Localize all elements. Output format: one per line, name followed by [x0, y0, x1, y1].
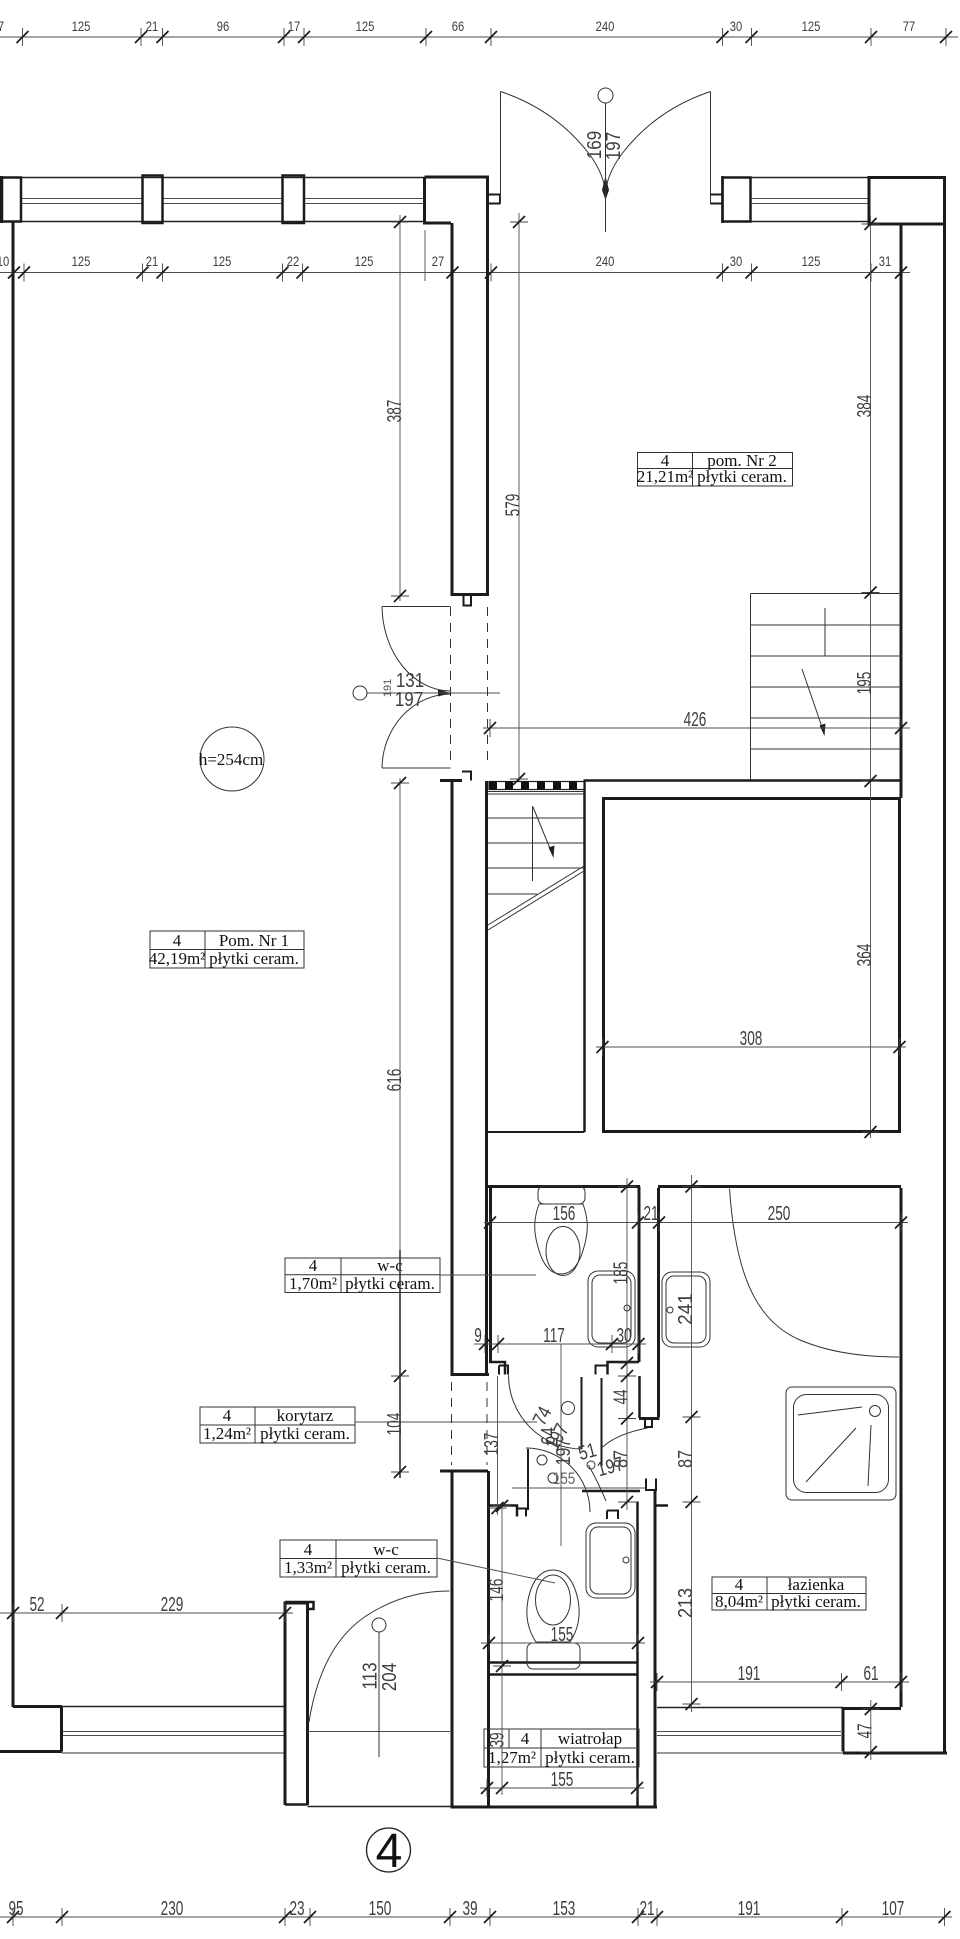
svg-text:155: 155 — [553, 1470, 576, 1489]
svg-text:4: 4 — [223, 1406, 232, 1425]
svg-text:77: 77 — [903, 19, 915, 34]
svg-text:229: 229 — [161, 1593, 184, 1615]
svg-text:579: 579 — [502, 494, 524, 517]
svg-text:21: 21 — [643, 1202, 658, 1224]
svg-text:61: 61 — [863, 1662, 878, 1684]
svg-text:125: 125 — [802, 19, 821, 34]
svg-text:w-c: w-c — [373, 1540, 399, 1559]
svg-text:95: 95 — [8, 1897, 23, 1919]
svg-text:364: 364 — [853, 944, 875, 967]
svg-text:52: 52 — [29, 1593, 44, 1615]
svg-text:Pom. Nr 1: Pom. Nr 1 — [219, 931, 289, 950]
svg-text:185: 185 — [610, 1262, 632, 1285]
svg-text:płytki ceram.: płytki ceram. — [771, 1592, 861, 1611]
svg-text:korytarz: korytarz — [277, 1406, 334, 1425]
svg-text:96: 96 — [217, 19, 229, 34]
svg-text:23: 23 — [289, 1897, 304, 1919]
svg-text:30: 30 — [730, 19, 742, 34]
svg-text:387: 387 — [383, 400, 405, 423]
svg-text:241: 241 — [675, 1293, 698, 1325]
svg-text:153: 153 — [553, 1897, 576, 1919]
svg-text:9: 9 — [474, 1324, 482, 1346]
svg-text:426: 426 — [684, 708, 707, 730]
svg-text:87: 87 — [610, 1450, 632, 1468]
svg-text:125: 125 — [802, 254, 821, 269]
svg-text:21: 21 — [639, 1897, 654, 1919]
svg-text:płytki ceram.: płytki ceram. — [341, 1558, 431, 1577]
svg-text:117: 117 — [543, 1324, 565, 1346]
svg-text:87: 87 — [674, 1450, 696, 1468]
svg-text:1,33m²: 1,33m² — [284, 1558, 332, 1577]
svg-text:10: 10 — [0, 254, 9, 269]
svg-text:204: 204 — [378, 1663, 401, 1691]
svg-text:21,21m²: 21,21m² — [637, 467, 694, 486]
svg-text:308: 308 — [740, 1027, 763, 1049]
svg-text:197: 197 — [552, 1439, 574, 1466]
svg-text:213: 213 — [675, 1588, 697, 1618]
svg-text:146: 146 — [485, 1579, 507, 1602]
svg-text:197: 197 — [602, 132, 625, 160]
svg-text:155: 155 — [551, 1623, 574, 1645]
svg-text:384: 384 — [853, 395, 875, 418]
svg-text:240: 240 — [596, 19, 615, 34]
svg-text:616: 616 — [383, 1069, 405, 1092]
svg-text:wiatrołap: wiatrołap — [558, 1729, 622, 1748]
svg-text:240: 240 — [596, 254, 615, 269]
svg-text:płytki ceram.: płytki ceram. — [697, 467, 787, 486]
svg-text:22: 22 — [287, 254, 299, 269]
svg-text:płytki ceram.: płytki ceram. — [345, 1274, 435, 1293]
svg-text:150: 150 — [369, 1897, 392, 1919]
svg-text:8,04m²: 8,04m² — [715, 1592, 763, 1611]
svg-text:1,70m²: 1,70m² — [289, 1274, 337, 1293]
svg-text:191: 191 — [738, 1662, 761, 1684]
svg-text:4: 4 — [173, 931, 182, 950]
svg-text:230: 230 — [161, 1897, 184, 1919]
svg-text:125: 125 — [355, 254, 374, 269]
svg-text:125: 125 — [356, 19, 375, 34]
svg-text:płytki ceram.: płytki ceram. — [209, 949, 299, 968]
svg-text:płytki ceram.: płytki ceram. — [545, 1748, 635, 1767]
svg-text:4: 4 — [309, 1256, 318, 1275]
svg-text:21: 21 — [146, 254, 158, 269]
svg-text:30: 30 — [616, 1324, 631, 1346]
svg-text:30: 30 — [730, 254, 742, 269]
svg-text:107: 107 — [882, 1897, 905, 1919]
svg-text:21: 21 — [146, 19, 158, 34]
svg-text:7: 7 — [0, 19, 4, 34]
svg-text:155: 155 — [551, 1768, 574, 1790]
svg-text:4: 4 — [376, 1825, 403, 1878]
svg-text:4: 4 — [521, 1729, 530, 1748]
svg-text:125: 125 — [72, 254, 91, 269]
svg-text:47: 47 — [854, 1723, 876, 1738]
svg-text:125: 125 — [72, 19, 91, 34]
svg-text:płytki ceram.: płytki ceram. — [260, 1424, 350, 1443]
svg-text:42,19m²: 42,19m² — [149, 949, 206, 968]
svg-text:44: 44 — [610, 1389, 632, 1404]
svg-text:27: 27 — [432, 254, 444, 269]
svg-text:156: 156 — [553, 1202, 576, 1224]
svg-text:137: 137 — [480, 1433, 502, 1456]
svg-text:39: 39 — [462, 1897, 477, 1919]
svg-text:31: 31 — [879, 254, 891, 269]
svg-text:39: 39 — [486, 1732, 508, 1747]
svg-text:250: 250 — [768, 1202, 791, 1224]
svg-text:66: 66 — [452, 19, 464, 34]
svg-text:195: 195 — [853, 672, 875, 695]
svg-text:4: 4 — [304, 1540, 313, 1559]
svg-text:17: 17 — [288, 19, 300, 34]
svg-text:125: 125 — [213, 254, 232, 269]
svg-text:197: 197 — [395, 688, 423, 711]
svg-text:104: 104 — [383, 1413, 405, 1436]
svg-text:h=254cm: h=254cm — [199, 750, 263, 769]
svg-text:191: 191 — [382, 679, 394, 697]
svg-text:191: 191 — [738, 1897, 761, 1919]
svg-text:1,27m²: 1,27m² — [488, 1748, 536, 1767]
svg-text:1,24m²: 1,24m² — [203, 1424, 251, 1443]
